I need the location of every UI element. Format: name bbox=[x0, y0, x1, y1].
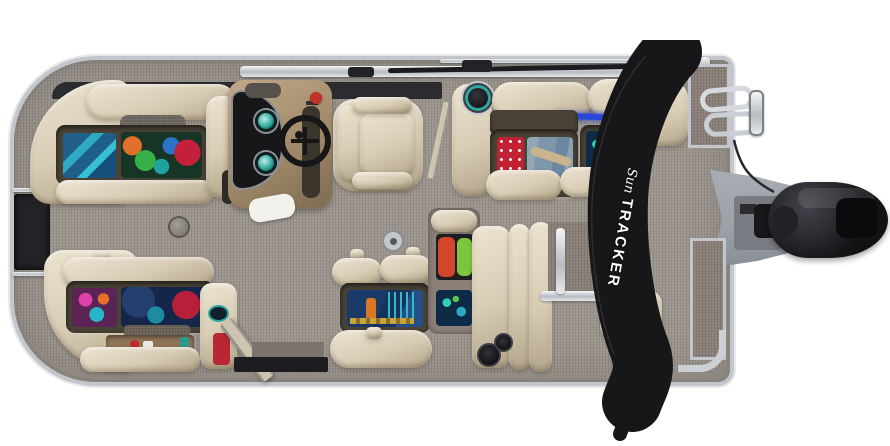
stern-rail-post bbox=[556, 228, 565, 294]
rigging-cable bbox=[720, 130, 800, 210]
deck-plate bbox=[168, 216, 190, 238]
arm-storage-red-gear bbox=[213, 333, 230, 365]
life-vest-red bbox=[438, 237, 455, 277]
helm-accessory bbox=[245, 83, 281, 98]
motor-cowl-vent bbox=[836, 198, 878, 238]
mid-bench-backrest-1 bbox=[332, 258, 382, 286]
gateway-opening bbox=[234, 357, 328, 372]
pontoon-boat-overhead-photo: SunTRACKER bbox=[0, 0, 890, 446]
boarding-ladder-rung-1 bbox=[699, 85, 755, 114]
aft-bench-seat-1 bbox=[486, 170, 562, 200]
mid-storage-yellow-trim bbox=[350, 318, 414, 324]
life-vest-green bbox=[457, 238, 472, 276]
rail-fitting bbox=[348, 67, 374, 77]
cockpit-speaker bbox=[463, 83, 493, 113]
stbd-bow-storage-gear-right bbox=[121, 287, 208, 327]
captain-chair-armrest-top bbox=[352, 97, 412, 114]
corner-column-headrest bbox=[431, 210, 477, 232]
port-bow-storage-towels bbox=[63, 133, 116, 178]
stbd-bow-storage-gear-left bbox=[72, 288, 117, 327]
throttle-knob bbox=[310, 92, 322, 104]
stbd-bow-lounge-seat-front bbox=[80, 347, 200, 372]
port-bow-lounge-seat-front bbox=[56, 180, 214, 204]
mid-bench-strap-tab bbox=[366, 327, 382, 339]
mid-bench-backrest-2 bbox=[380, 255, 432, 283]
bow-gate bbox=[14, 194, 50, 270]
motor-front-cap bbox=[772, 206, 798, 236]
helm-gauge-bottom bbox=[255, 152, 277, 174]
bimini-logo-script-text: Sun bbox=[620, 167, 639, 195]
captain-chair-armrest-bottom bbox=[352, 172, 412, 189]
bimini-mount-fitting bbox=[462, 60, 492, 72]
steering-wheel bbox=[279, 115, 331, 167]
helm-gauge-top bbox=[255, 110, 277, 132]
port-bow-storage-gear bbox=[121, 132, 202, 178]
stern-lounge-backrest-1 bbox=[509, 224, 530, 370]
boarding-ladder-pad bbox=[749, 90, 764, 136]
under-bimini-cushion-bottom bbox=[612, 328, 664, 370]
under-bimini-cushion-top bbox=[636, 82, 688, 146]
table-mount-hole bbox=[390, 238, 397, 245]
aft-storage-teal-towels bbox=[586, 131, 621, 169]
corner-storage-bottom-compartment bbox=[436, 290, 472, 326]
steering-wheel-hub bbox=[295, 131, 303, 139]
captain-chair-seat bbox=[360, 112, 414, 178]
stern-speaker-2 bbox=[494, 333, 513, 352]
